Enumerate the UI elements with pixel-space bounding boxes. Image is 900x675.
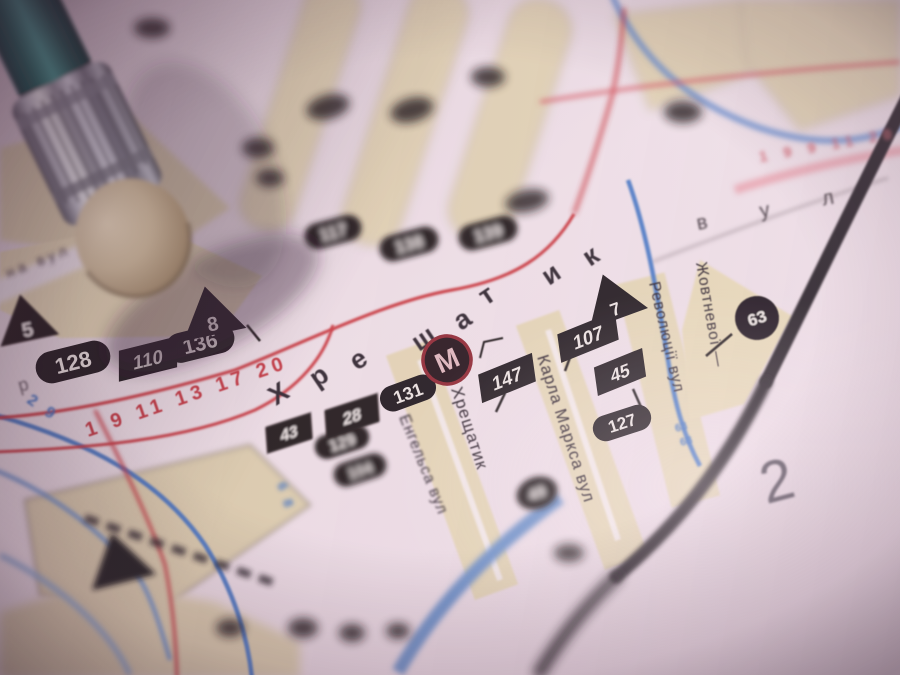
photo-of-city-map-with-pencil: 2 Х р е щ а т и к Хрещатик Енгельса вул …: [0, 0, 900, 675]
map-photo-canvas: 2 Х р е щ а т и к Хрещатик Енгельса вул …: [0, 0, 900, 675]
